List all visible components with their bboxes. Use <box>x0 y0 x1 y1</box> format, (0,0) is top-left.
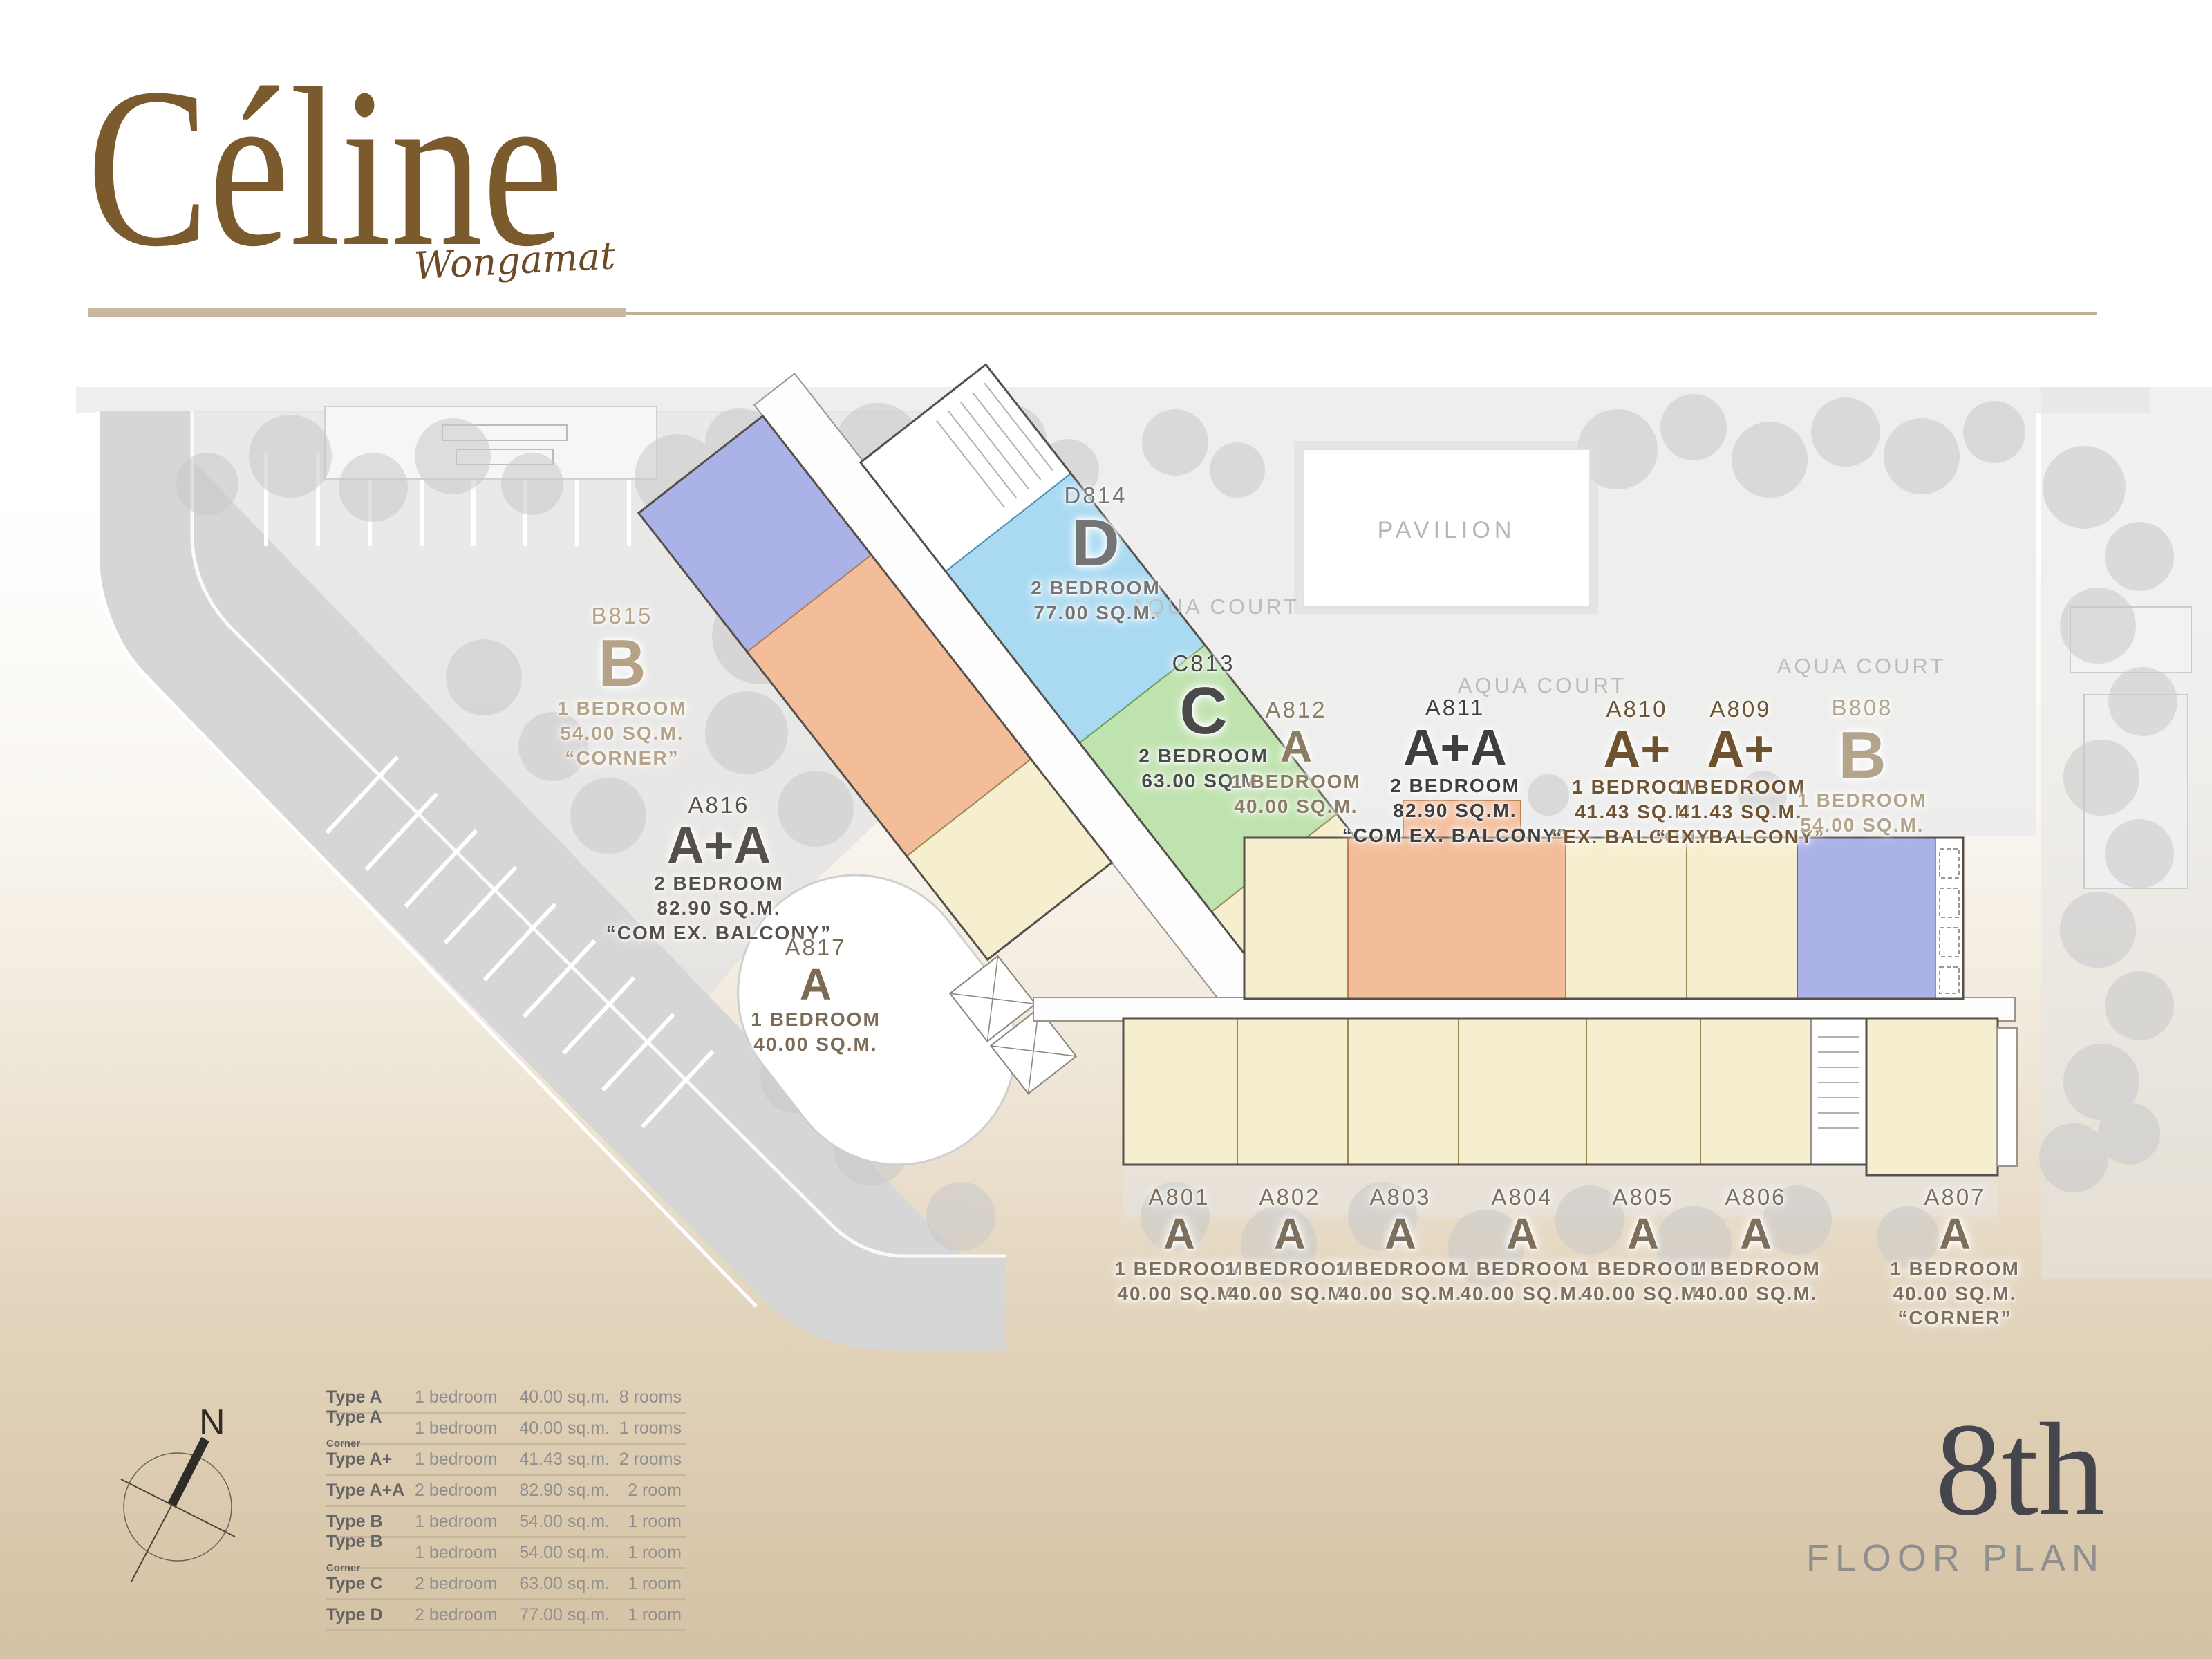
legend-type: Type A Corner <box>326 1407 415 1450</box>
unit-detail-line: “COM EX. BALCONY” <box>1342 823 1568 848</box>
unit-a804-footprint <box>1459 1018 1586 1165</box>
compass-needle <box>171 1439 205 1506</box>
unit-detail-line: 40.00 SQ.M. <box>1578 1282 1708 1306</box>
unit-code: A806 <box>1691 1184 1821 1210</box>
unit-a807-footprint <box>1866 1018 1998 1175</box>
unit-detail-line: 40.00 SQ.M. <box>1231 794 1361 819</box>
unit-detail-line: 54.00 SQ.M. <box>1797 813 1927 838</box>
unit-label-d814: D814D2 BEDROOM77.00 SQ.M. <box>1031 482 1161 626</box>
legend-row: Type A+1 bedroom41.43 sq.m.2 rooms <box>326 1445 686 1476</box>
unit-type-letter: A <box>1578 1213 1708 1255</box>
unit-code: A816 <box>606 792 832 818</box>
aqua-court-label: AQUA COURT <box>1777 654 1946 679</box>
legend-type-name: Type A <box>326 1387 382 1407</box>
legend-room-count: 1 rooms <box>610 1418 682 1438</box>
unit-label-a816: A816A+A2 BEDROOM82.90 SQ.M.“COM EX. BALC… <box>606 792 832 946</box>
legend-area: 41.43 sq.m. <box>513 1450 610 1470</box>
legend-type: Type B Corner <box>326 1532 415 1574</box>
legend-type: Type C <box>326 1574 415 1594</box>
unit-detail-line: 40.00 SQ.M. <box>1890 1282 2020 1306</box>
legend-area: 54.00 sq.m. <box>513 1543 610 1563</box>
unit-detail-line: 40.00 SQ.M. <box>1457 1282 1587 1306</box>
unit-a805-footprint <box>1586 1018 1700 1165</box>
unit-detail-line: 82.90 SQ.M. <box>606 896 832 921</box>
legend-room-count: 2 room <box>610 1481 682 1501</box>
legend-bedrooms: 1 bedroom <box>415 1543 513 1563</box>
unit-type-letter: A <box>1691 1213 1821 1255</box>
legend-type-subscript: Corner <box>326 1562 360 1574</box>
unit-detail-line: 40.00 SQ.M. <box>1691 1282 1821 1306</box>
legend-type-name: Type C <box>326 1574 383 1593</box>
unit-detail-line: 1 BEDROOM <box>1231 769 1361 794</box>
unit-type-letter: A+A <box>1342 724 1568 772</box>
unit-a802-footprint <box>1237 1018 1348 1165</box>
unit-detail-line: 40.00 SQ.M. <box>1335 1282 1465 1306</box>
unit-type-letter: A <box>1231 726 1361 768</box>
legend-bedrooms: 2 bedroom <box>415 1574 513 1594</box>
unit-detail-line: 77.00 SQ.M. <box>1031 601 1161 626</box>
legend-room-count: 1 room <box>610 1512 682 1532</box>
unit-detail-line: 1 BEDROOM <box>1457 1257 1587 1282</box>
legend-row: Type B Corner1 bedroom54.00 sq.m.1 room <box>326 1538 686 1569</box>
unit-b808-footprint <box>1797 838 1935 999</box>
unit-type-letter: A <box>751 964 881 1006</box>
unit-code: C813 <box>1138 650 1268 677</box>
legend-type-name: Type A+A <box>326 1481 404 1500</box>
pavilion-label: PAVILION <box>1303 517 1590 544</box>
legend-room-count: 2 rooms <box>610 1450 682 1470</box>
legend-room-count: 1 room <box>610 1543 682 1563</box>
unit-code: B808 <box>1797 695 1927 721</box>
unit-code: A817 <box>751 935 881 961</box>
unit-label-a803: A803A1 BEDROOM40.00 SQ.M. <box>1335 1184 1465 1306</box>
unit-label-a804: A804A1 BEDROOM40.00 SQ.M. <box>1457 1184 1587 1306</box>
legend-room-count: 1 room <box>610 1574 682 1594</box>
header-divider-accent <box>88 308 626 317</box>
legend-row: Type C2 bedroom63.00 sq.m.1 room <box>326 1569 686 1600</box>
legend-room-count: 1 room <box>610 1605 682 1625</box>
unit-label-a807: A807A1 BEDROOM40.00 SQ.M.“CORNER” <box>1890 1184 2020 1331</box>
unit-type-letter: B <box>1797 724 1927 787</box>
legend-type-name: Type D <box>326 1605 383 1624</box>
unit-code: A807 <box>1890 1184 2020 1210</box>
unit-code: A811 <box>1342 695 1568 721</box>
floor-plate: 8th FLOOR PLAN <box>1806 1407 2105 1580</box>
unit-label-b808: B808B1 BEDROOM54.00 SQ.M. <box>1797 695 1927 838</box>
legend-bedrooms: 1 bedroom <box>415 1418 513 1438</box>
legend-area: 63.00 sq.m. <box>513 1574 610 1594</box>
unit-code: D814 <box>1031 482 1161 509</box>
unit-detail-line: 2 BEDROOM <box>1031 576 1161 601</box>
lower-stair-block <box>1811 1018 1866 1165</box>
unit-code: A803 <box>1335 1184 1465 1210</box>
legend-area: 54.00 sq.m. <box>513 1512 610 1532</box>
unit-code: A805 <box>1578 1184 1708 1210</box>
unit-label-a806: A806A1 BEDROOM40.00 SQ.M. <box>1691 1184 1821 1306</box>
header-divider-line <box>626 312 2097 315</box>
unit-detail-line: 1 BEDROOM <box>1691 1257 1821 1282</box>
unit-detail-line: 1 BEDROOM <box>1797 788 1927 813</box>
unit-a812-footprint <box>1244 838 1348 999</box>
unit-type-letter: A <box>1335 1213 1465 1255</box>
legend-bedrooms: 2 bedroom <box>415 1605 513 1625</box>
unit-detail-line: 54.00 SQ.M. <box>557 721 687 746</box>
unit-type-letter: A <box>1457 1213 1587 1255</box>
unit-a811-footprint <box>1348 838 1566 999</box>
unit-label-a805: A805A1 BEDROOM40.00 SQ.M. <box>1578 1184 1708 1306</box>
legend-area: 77.00 sq.m. <box>513 1605 610 1625</box>
legend-type: Type B <box>326 1512 415 1532</box>
unit-label-a817: A817A1 BEDROOM40.00 SQ.M. <box>751 935 881 1056</box>
legend-bedrooms: 1 bedroom <box>415 1450 513 1470</box>
legend-type: Type D <box>326 1605 415 1625</box>
legend-bedrooms: 1 bedroom <box>415 1387 513 1407</box>
unit-type-legend: Type A1 bedroom40.00 sq.m.8 roomsType A … <box>326 1382 686 1631</box>
unit-detail-line: 1 BEDROOM <box>557 696 687 721</box>
legend-type: Type A+A <box>326 1481 415 1501</box>
floor-number: 8th <box>1806 1407 2105 1533</box>
legend-type-name: Type B <box>326 1532 383 1551</box>
unit-detail-line: 40.00 SQ.M. <box>751 1032 881 1057</box>
unit-code: A812 <box>1231 697 1361 723</box>
unit-detail-line: 82.90 SQ.M. <box>1342 798 1568 823</box>
legend-type-name: Type A <box>326 1407 382 1427</box>
a807-balcony-column <box>1998 1028 2017 1166</box>
legend-row: Type D2 bedroom77.00 sq.m.1 room <box>326 1600 686 1631</box>
legend-area: 40.00 sq.m. <box>513 1387 610 1407</box>
unit-a806-footprint <box>1700 1018 1811 1165</box>
legend-bedrooms: 1 bedroom <box>415 1512 513 1532</box>
legend-area: 40.00 sq.m. <box>513 1418 610 1438</box>
legend-room-count: 8 rooms <box>610 1387 682 1407</box>
floorplan-poster: Céline Wongamat PAVILION AQUA COURTAQUA … <box>0 0 2212 1659</box>
legend-type-name: Type A+ <box>326 1450 392 1469</box>
unit-type-letter: A+A <box>606 821 832 870</box>
unit-code: B815 <box>557 603 687 629</box>
compass-needle-tail <box>131 1506 171 1582</box>
unit-detail-line: 2 BEDROOM <box>606 871 832 896</box>
unit-detail-line: “CORNER” <box>1890 1306 2020 1331</box>
unit-a803-footprint <box>1348 1018 1459 1165</box>
unit-detail-line: 1 BEDROOM <box>751 1007 881 1032</box>
unit-label-a811: A811A+A2 BEDROOM82.90 SQ.M.“COM EX. BALC… <box>1342 695 1568 848</box>
unit-detail-line: 1 BEDROOM <box>1335 1257 1465 1282</box>
floor-caption: FLOOR PLAN <box>1806 1537 2105 1580</box>
unit-type-letter: A <box>1890 1213 2020 1255</box>
legend-type-subscript: Corner <box>326 1438 360 1450</box>
legend-type: Type A+ <box>326 1450 415 1470</box>
legend-row: Type A+A2 bedroom82.90 sq.m.2 room <box>326 1476 686 1507</box>
legend-type-name: Type B <box>326 1512 383 1531</box>
unit-detail-line: 2 BEDROOM <box>1342 774 1568 798</box>
legend-area: 82.90 sq.m. <box>513 1481 610 1501</box>
compass-circle <box>124 1453 232 1561</box>
unit-type-letter: B <box>557 632 687 695</box>
unit-a801-footprint <box>1123 1018 1237 1165</box>
unit-label-a812: A812A1 BEDROOM40.00 SQ.M. <box>1231 697 1361 818</box>
unit-detail-line: “CORNER” <box>557 746 687 771</box>
unit-detail-line: 1 BEDROOM <box>1890 1257 2020 1282</box>
unit-type-letter: D <box>1031 512 1161 574</box>
legend-row: Type A Corner1 bedroom40.00 sq.m.1 rooms <box>326 1414 686 1445</box>
unit-detail-line: 1 BEDROOM <box>1578 1257 1708 1282</box>
unit-code: A804 <box>1457 1184 1587 1210</box>
unit-a809-footprint <box>1687 838 1797 999</box>
compass-north-label: N <box>199 1402 225 1443</box>
legend-bedrooms: 2 bedroom <box>415 1481 513 1501</box>
unit-label-b815: B815B1 BEDROOM54.00 SQ.M.“CORNER” <box>557 603 687 771</box>
unit-a810-footprint <box>1566 838 1687 999</box>
legend-type: Type A <box>326 1387 415 1407</box>
